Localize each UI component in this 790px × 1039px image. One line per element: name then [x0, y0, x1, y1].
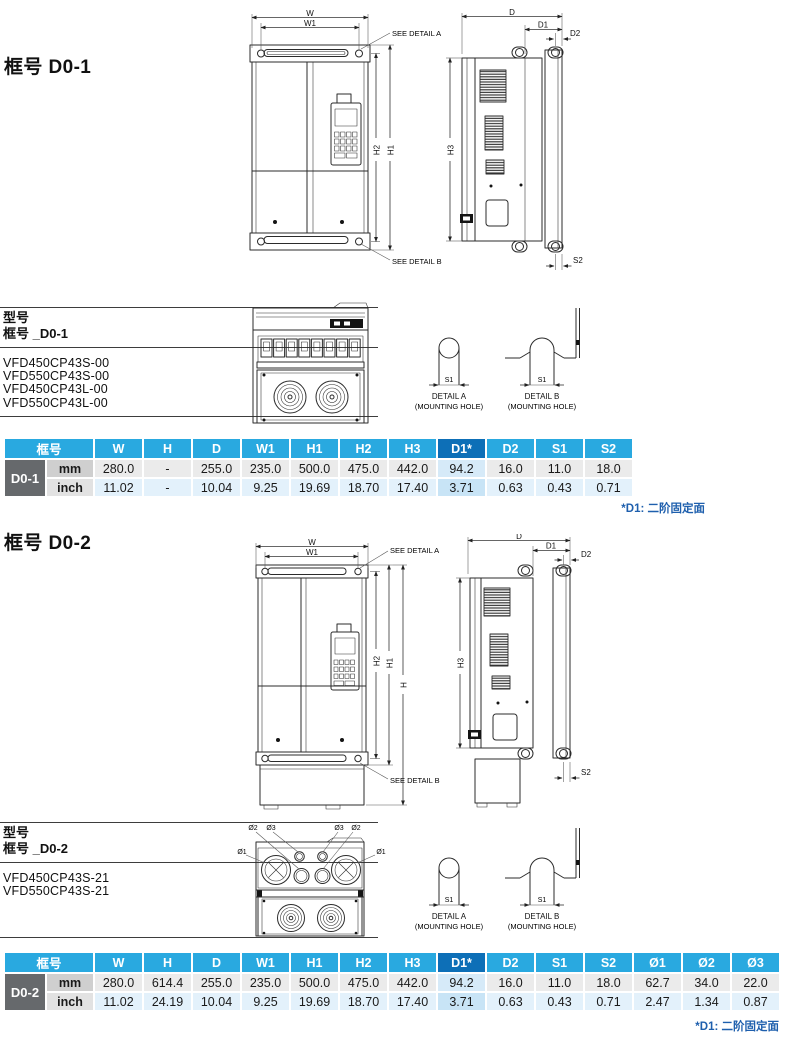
- d01-front-side-drawing: W W1 H2 H1 SEE DETAIL A SEE DETAIL B: [240, 8, 600, 293]
- col-header: D2: [487, 953, 534, 972]
- d02-front-drawing: W W1 H2 H1 H SEE DETAIL A SEE DETAIL B: [240, 538, 455, 838]
- d02-front-view: [256, 565, 368, 809]
- dim-label-h3: H3: [457, 657, 466, 668]
- dim-value: 11.0: [536, 974, 583, 991]
- opening-o3-left: [295, 852, 305, 862]
- col-header-frame: 框号: [5, 439, 93, 458]
- table-header-row: 框号 W H D W1 H1 H2 H3 D1* D2 S1 S2 Ø1 Ø2 …: [5, 953, 779, 972]
- col-header: S2: [585, 439, 632, 458]
- dim-value: 0.63: [487, 993, 534, 1010]
- model-item: VFD550CP43S-21: [3, 885, 109, 898]
- dim-value-d1: 94.2: [438, 974, 485, 991]
- col-header: Ø1: [634, 953, 681, 972]
- dim-value: -: [144, 479, 191, 496]
- table-row-mm: D0-2 mm 280.0 614.4 255.0 235.0 500.0 47…: [5, 974, 779, 991]
- d02-bottom-view-drawing: Ø2 Ø3 Ø3 Ø2 Ø1 Ø1: [235, 818, 395, 946]
- dim-label-h2: H2: [373, 655, 382, 666]
- dim-value: 11.02: [95, 479, 142, 496]
- detail-a-subtitle: (MOUNTING HOLE): [415, 922, 484, 931]
- opening-o1-left: [262, 856, 291, 885]
- d01-heading: 框号 D0-1: [4, 52, 91, 79]
- dim-value: 500.0: [291, 460, 338, 477]
- dim-label-s1: S1: [538, 377, 547, 384]
- d02-heading: 框号 D0-2: [4, 528, 91, 555]
- dim-value: 442.0: [389, 974, 436, 991]
- col-header: H2: [340, 439, 387, 458]
- dim-value: 0.87: [732, 993, 779, 1010]
- dim-label-o2: Ø2: [351, 825, 360, 832]
- dim-value: 2.47: [634, 993, 681, 1010]
- d02-side-drawing: D D1 D2 H3 S2: [450, 534, 610, 840]
- dim-value: 17.40: [389, 993, 436, 1010]
- dim-value: 10.04: [193, 993, 240, 1010]
- d01-front-dimensions: [252, 14, 394, 260]
- dim-value: 500.0: [291, 974, 338, 991]
- d01-side-view: [460, 47, 563, 252]
- detail-b-drawing: [505, 308, 580, 385]
- dim-value: 18.0: [585, 974, 632, 991]
- d02-table-note: *D1: 二阶固定面: [3, 1018, 779, 1034]
- d01-models-subtitle: 框号 _D0-1: [3, 326, 68, 341]
- frame-label: D0-1: [5, 460, 45, 496]
- d01-dimension-table: 框号 W H D W1 H1 H2 H3 D1* D2 S1 S2 D0-1 m…: [3, 437, 634, 498]
- d01-keypad: [331, 94, 361, 165]
- dim-label-o1: Ø1: [237, 849, 246, 856]
- col-header: H3: [389, 439, 436, 458]
- opening-o3-right: [318, 852, 328, 862]
- dim-label-d1: D1: [538, 21, 549, 30]
- d01-model-list: VFD450CP43S-00 VFD550CP43S-00 VFD450CP43…: [3, 357, 109, 410]
- col-header: H3: [389, 953, 436, 972]
- dim-label-h2: H2: [373, 144, 382, 155]
- col-header: D: [193, 439, 240, 458]
- d02-models-title: 型号: [3, 825, 29, 840]
- opening-o1-right: [332, 856, 361, 885]
- dim-label-w1: W1: [304, 19, 317, 28]
- dim-value: 24.19: [144, 993, 191, 1010]
- dim-label-o2: Ø2: [248, 825, 257, 832]
- col-header: H2: [340, 953, 387, 972]
- dim-label-w: W: [306, 9, 314, 18]
- dim-value: 1.34: [683, 993, 730, 1010]
- dim-value: 0.71: [585, 993, 632, 1010]
- unit-label: inch: [47, 479, 93, 496]
- dim-value: 614.4: [144, 974, 191, 991]
- d02-dimension-table: 框号 W H D W1 H1 H2 H3 D1* D2 S1 S2 Ø1 Ø2 …: [3, 951, 781, 1012]
- dim-value: 16.0: [487, 974, 534, 991]
- dim-value: 475.0: [340, 974, 387, 991]
- detail-b-drawing: [505, 828, 580, 905]
- d02-bottom-view: [256, 838, 364, 936]
- col-header: S1: [536, 953, 583, 972]
- dim-value: -: [144, 460, 191, 477]
- col-header-frame: 框号: [5, 953, 93, 972]
- model-item: VFD550CP43L-00: [3, 397, 109, 410]
- fan-left: [278, 905, 305, 932]
- col-header-d1: D1*: [438, 953, 485, 972]
- col-header: H: [144, 439, 191, 458]
- see-detail-b-label: SEE DETAIL B: [390, 776, 440, 785]
- detail-b-subtitle: (MOUNTING HOLE): [508, 922, 577, 931]
- dim-label-s1: S1: [538, 897, 547, 904]
- d02-side-view: [468, 565, 571, 807]
- dim-value: 280.0: [95, 974, 142, 991]
- d02-bottom-leaders: [246, 832, 375, 869]
- dim-label-s2: S2: [581, 768, 591, 777]
- d01-mounting-hole-details: S1 DETAIL A (MOUNTING HOLE) S1 DETAIL B …: [402, 300, 587, 420]
- dim-value: 0.43: [536, 479, 583, 496]
- dim-value: 0.43: [536, 993, 583, 1010]
- fan-left: [274, 381, 306, 413]
- unit-label: inch: [47, 993, 93, 1010]
- col-header: H1: [291, 439, 338, 458]
- detail-a-title: DETAIL A: [432, 912, 467, 921]
- dim-value: 9.25: [242, 993, 289, 1010]
- d01-top-view-drawing: [248, 300, 378, 430]
- d02-conduit-box-side: [475, 759, 520, 807]
- col-header: H1: [291, 953, 338, 972]
- detail-b-title: DETAIL B: [525, 392, 560, 401]
- dim-value: 235.0: [242, 460, 289, 477]
- d02-keypad: [331, 624, 359, 690]
- col-header: D: [193, 953, 240, 972]
- dim-value: 442.0: [389, 460, 436, 477]
- unit-label: mm: [47, 460, 93, 477]
- col-header: H: [144, 953, 191, 972]
- table-row-inch: inch 11.02 24.19 10.04 9.25 19.69 18.70 …: [5, 993, 779, 1010]
- dim-label-d: D: [509, 8, 515, 17]
- detail-a-subtitle: (MOUNTING HOLE): [415, 402, 484, 411]
- fan-right: [318, 905, 345, 932]
- dim-value: 10.04: [193, 479, 240, 496]
- dim-value: 18.70: [340, 993, 387, 1010]
- dim-value: 19.69: [291, 993, 338, 1010]
- dim-value: 16.0: [487, 460, 534, 477]
- dim-value: 280.0: [95, 460, 142, 477]
- table-row-mm: D0-1 mm 280.0 - 255.0 235.0 500.0 475.0 …: [5, 460, 632, 477]
- dim-value-d1: 94.2: [438, 460, 485, 477]
- dim-label-h: H: [400, 682, 409, 688]
- dim-label-d2: D2: [570, 29, 581, 38]
- opening-o2-left: [294, 869, 309, 884]
- col-header: W1: [242, 439, 289, 458]
- dim-value: 0.63: [487, 479, 534, 496]
- frame-label: D0-2: [5, 974, 45, 1010]
- dim-label-d2: D2: [581, 550, 592, 559]
- dim-value: 22.0: [732, 974, 779, 991]
- dim-value: 475.0: [340, 460, 387, 477]
- detail-b-title: DETAIL B: [525, 912, 560, 921]
- d01-models-title: 型号: [3, 310, 29, 325]
- d01-table-note: *D1: 二阶固定面: [3, 500, 705, 516]
- fan-right: [316, 381, 348, 413]
- dim-value: 62.7: [634, 974, 681, 991]
- dim-value: 235.0: [242, 974, 289, 991]
- dim-value: 11.0: [536, 460, 583, 477]
- table-row-inch: inch 11.02 - 10.04 9.25 19.69 18.70 17.4…: [5, 479, 632, 496]
- dim-label-s1: S1: [445, 377, 454, 384]
- dim-value: 9.25: [242, 479, 289, 496]
- d02-conduit-box-front: [260, 765, 364, 809]
- model-item: VFD450CP43L-00: [3, 383, 109, 396]
- dim-value-d1: 3.71: [438, 993, 485, 1010]
- d02-models-subtitle: 框号 _D0-2: [3, 841, 68, 856]
- dim-value: 0.71: [585, 479, 632, 496]
- dim-label-w1: W1: [306, 548, 319, 557]
- dim-value: 11.02: [95, 993, 142, 1010]
- col-header-d1: D1*: [438, 439, 485, 458]
- d02-model-list: VFD450CP43S-21 VFD550CP43S-21: [3, 872, 109, 898]
- opening-o2-right: [315, 869, 330, 884]
- dim-value: 18.0: [585, 460, 632, 477]
- page: 框号 D0-1: [0, 0, 790, 1039]
- col-header: S2: [585, 953, 632, 972]
- detail-b-subtitle: (MOUNTING HOLE): [508, 402, 577, 411]
- see-detail-b-label: SEE DETAIL B: [392, 257, 442, 266]
- col-header: W: [95, 439, 142, 458]
- dim-value: 255.0: [193, 974, 240, 991]
- col-header: S1: [536, 439, 583, 458]
- see-detail-a-label: SEE DETAIL A: [392, 29, 441, 38]
- d02-mounting-hole-details: S1 DETAIL A (MOUNTING HOLE) S1 DETAIL B …: [402, 820, 587, 942]
- dim-label-d: D: [516, 534, 522, 541]
- dim-label-o3: Ø3: [266, 825, 275, 832]
- dim-value: 18.70: [340, 479, 387, 496]
- dim-label-o3: Ø3: [334, 825, 343, 832]
- dim-value: 17.40: [389, 479, 436, 496]
- dim-label-d1: D1: [546, 542, 557, 551]
- dim-value: 255.0: [193, 460, 240, 477]
- dim-label-h1: H1: [387, 144, 396, 155]
- unit-label: mm: [47, 974, 93, 991]
- dim-label-h1: H1: [386, 657, 395, 668]
- dim-label-o1: Ø1: [376, 849, 385, 856]
- dim-label-s2: S2: [573, 256, 583, 265]
- dim-value: 34.0: [683, 974, 730, 991]
- dim-label-h3: H3: [447, 144, 456, 155]
- table-header-row: 框号 W H D W1 H1 H2 H3 D1* D2 S1 S2: [5, 439, 632, 458]
- d01-front-view: [250, 45, 370, 250]
- see-detail-a-label: SEE DETAIL A: [390, 546, 439, 555]
- dim-label-w: W: [308, 538, 316, 547]
- col-header: W: [95, 953, 142, 972]
- d01-side-dimensions: [446, 13, 572, 270]
- dim-value: 19.69: [291, 479, 338, 496]
- dim-label-s1: S1: [445, 897, 454, 904]
- col-header: Ø3: [732, 953, 779, 972]
- col-header: W1: [242, 953, 289, 972]
- col-header: Ø2: [683, 953, 730, 972]
- dim-value-d1: 3.71: [438, 479, 485, 496]
- col-header: D2: [487, 439, 534, 458]
- detail-a-title: DETAIL A: [432, 392, 467, 401]
